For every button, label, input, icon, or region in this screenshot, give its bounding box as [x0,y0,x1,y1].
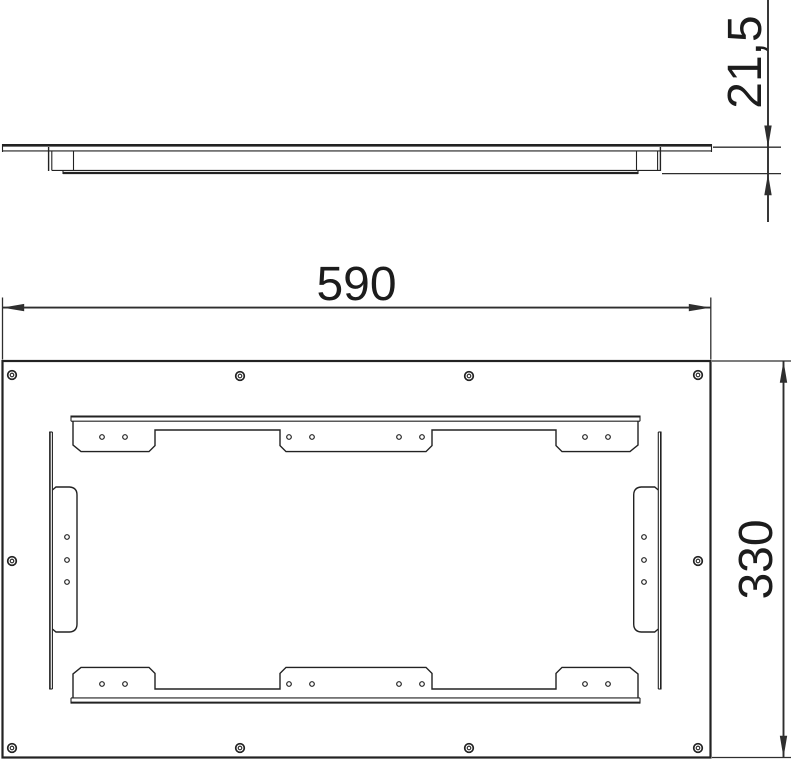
plate-screw-holes-group [8,371,703,753]
plate-screw-hole-center [10,373,14,377]
height-arrow-up-icon [780,361,787,383]
dimension-height: 330 [712,361,791,758]
tray-top-rail-with-tabs [73,421,638,451]
dimension-depth: 21,5 [662,0,781,222]
plate-screw-hole-center [696,746,700,750]
tab-fixing-hole [100,682,105,687]
depth-dimension-label: 21,5 [719,15,772,108]
tab-fixing-hole [642,535,647,540]
tab-fixing-hole [606,682,611,687]
tab-fixing-hole [65,535,70,540]
width-arrow-right-icon [689,304,711,311]
plate-screw-hole-center [467,374,471,378]
tab-fixing-hole [583,435,588,440]
tab-fixing-hole [287,435,292,440]
plate-screw-hole-center [467,746,471,750]
height-dimension-label: 330 [730,519,783,599]
plate-screw-hole-center [238,374,242,378]
tray-bottom-rail-with-tabs [73,667,638,698]
tab-fixing-hole [642,580,647,585]
tab-fixing-hole [420,682,425,687]
tab-fixing-hole [123,435,128,440]
front-view [3,361,711,758]
tab-fixing-hole [397,435,402,440]
tab-fixing-hole [606,435,611,440]
side-view [3,144,712,174]
tab-fixing-hole [65,558,70,563]
tab-fixing-hole [420,435,425,440]
plate-screw-hole-center [696,559,700,563]
tab-fixing-hole [123,682,128,687]
tab-fixing-hole [583,682,588,687]
depth-arrow-down-icon [764,126,771,148]
tab-fixing-hole [397,682,402,687]
tab-fixing-hole [65,580,70,585]
tab-fixing-hole [287,682,292,687]
plate-screw-hole-center [10,559,14,563]
plate-screw-hole-center [238,746,242,750]
width-dimension-label: 590 [316,258,396,311]
dimension-width: 590 [3,258,711,360]
height-arrow-down-icon [780,736,787,758]
tab-fixing-holes-group [65,435,647,687]
plate-screw-hole-center [10,746,14,750]
technical-drawing-canvas: 21,5 [0,0,794,760]
width-arrow-left-icon [3,304,25,311]
tab-fixing-hole [642,558,647,563]
tray-edge-bands [49,416,661,704]
technical-drawing-page: 21,5 [0,0,794,760]
plate-screw-hole-center [696,373,700,377]
depth-arrow-up-icon [764,174,771,196]
tab-fixing-hole [310,435,315,440]
tab-fixing-hole [100,435,105,440]
tab-fixing-hole [310,682,315,687]
